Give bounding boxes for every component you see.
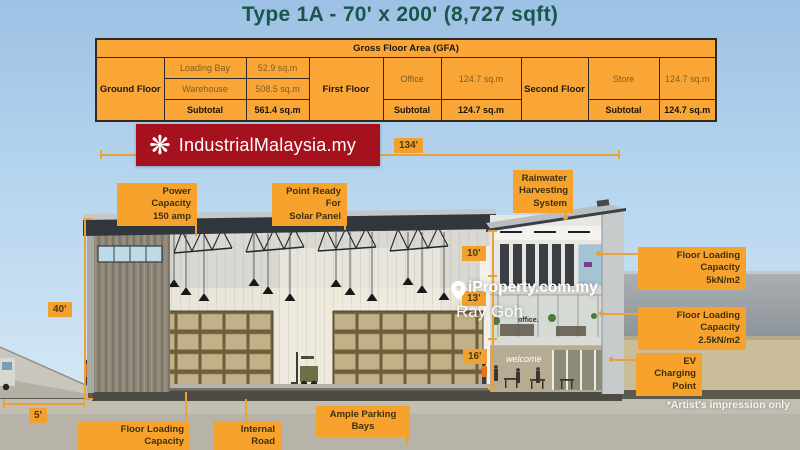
callout-rainwater: Rainwater Harvesting System — [513, 170, 573, 213]
gfa-warehouse-label: Warehouse — [164, 79, 246, 100]
artist-impression-disclaimer: *Artist's impression only — [630, 399, 790, 411]
dim-badge-10: 10' — [462, 246, 486, 261]
dim-line-40 — [84, 219, 86, 400]
gfa-ground-floor: Ground Floor — [96, 58, 164, 122]
dim-tick — [3, 399, 5, 408]
gfa-store-label: Store — [588, 58, 659, 100]
gfa-loading-bay-label: Loading Bay — [164, 58, 246, 79]
gfa-ground-subtotal-value: 561.4 sq.m — [246, 100, 309, 122]
gfa-second-subtotal-value: 124.7 sq.m — [659, 100, 716, 122]
welcome-sign: welcome — [506, 354, 542, 364]
connector-dot — [609, 357, 614, 362]
connector-floor15 — [185, 392, 187, 421]
ground-floor-lobby: welcome — [490, 346, 604, 392]
brochure-canvas: office. welcome — [0, 0, 800, 450]
industrialmalaysia-logo: ❋ IndustrialMalaysia.my — [136, 124, 380, 166]
gfa-loading-bay-value: 52.9 sq.m — [246, 58, 309, 79]
dim-tick — [618, 150, 620, 159]
dim-line-5 — [3, 403, 85, 405]
connector-ev — [612, 359, 636, 361]
callout-floor-loading-5: Floor Loading Capacity 5kN/m2 — [638, 247, 746, 290]
gfa-warehouse-value: 508.5 sq.m — [246, 79, 309, 100]
gfa-office-label: Office — [383, 58, 441, 100]
connector-floor5 — [599, 253, 638, 255]
gfa-second-floor: Second Floor — [521, 58, 588, 122]
callout-solar-panel: Point Ready For Solar Panel — [272, 183, 347, 226]
dim-tick — [84, 398, 93, 400]
dim-badge-40: 40' — [48, 302, 72, 317]
callout-ev-charging: EV Charging Point — [636, 353, 702, 396]
callout-parking: Ample Parking Bays — [316, 406, 410, 437]
connector-dot — [596, 251, 601, 256]
gfa-table: Gross Floor Area (GFA) Ground Floor Load… — [95, 38, 717, 122]
page-title: Type 1A - 70' x 200' (8,727 sqft) — [0, 3, 800, 27]
left-wall — [87, 221, 170, 393]
callout-power-capacity: Power Capacity 150 amp — [117, 183, 197, 226]
callout-floor-loading-15: Floor Loading Capacity 15kN/m2 — [78, 421, 190, 450]
gfa-office-value: 124.7 sq.m — [441, 58, 521, 100]
dim-tick — [488, 230, 497, 232]
dim-badge-16: 16' — [463, 349, 487, 364]
dim-tick — [488, 275, 497, 277]
truck — [0, 358, 15, 390]
connector-dot — [563, 215, 568, 220]
connector-floor25 — [602, 313, 638, 315]
gfa-first-subtotal-label: Subtotal — [383, 100, 441, 122]
gfa-second-subtotal-label: Subtotal — [588, 100, 659, 122]
gfa-first-floor: First Floor — [309, 58, 383, 122]
gfa-ground-subtotal-label: Subtotal — [164, 100, 246, 122]
dim-tick — [488, 388, 497, 390]
dim-badge-134: 134' — [394, 138, 423, 153]
dim-tick — [488, 338, 497, 340]
flower-icon: ❋ — [149, 132, 171, 158]
callout-internal-road: Internal Road 6 Metre — [213, 421, 281, 450]
agent-name-watermark: Ray Goh — [456, 302, 523, 322]
gfa-header: Gross Floor Area (GFA) — [96, 39, 716, 58]
connector-road — [245, 399, 247, 421]
callout-floor-loading-25: Floor Loading Capacity 2.5kN/m2 — [638, 307, 746, 350]
gfa-store-value: 124.7 sq.m — [659, 58, 716, 100]
dim-tick — [84, 218, 93, 220]
dim-tick — [84, 399, 86, 408]
dim-tick — [100, 150, 102, 159]
gfa-first-subtotal-value: 124.7 sq.m — [441, 100, 521, 122]
iproperty-watermark: iProperty.com.my — [468, 279, 598, 297]
connector-dot — [599, 311, 604, 316]
logo-text: IndustrialMalaysia.my — [179, 135, 356, 156]
dim-badge-5: 5' — [29, 408, 47, 423]
